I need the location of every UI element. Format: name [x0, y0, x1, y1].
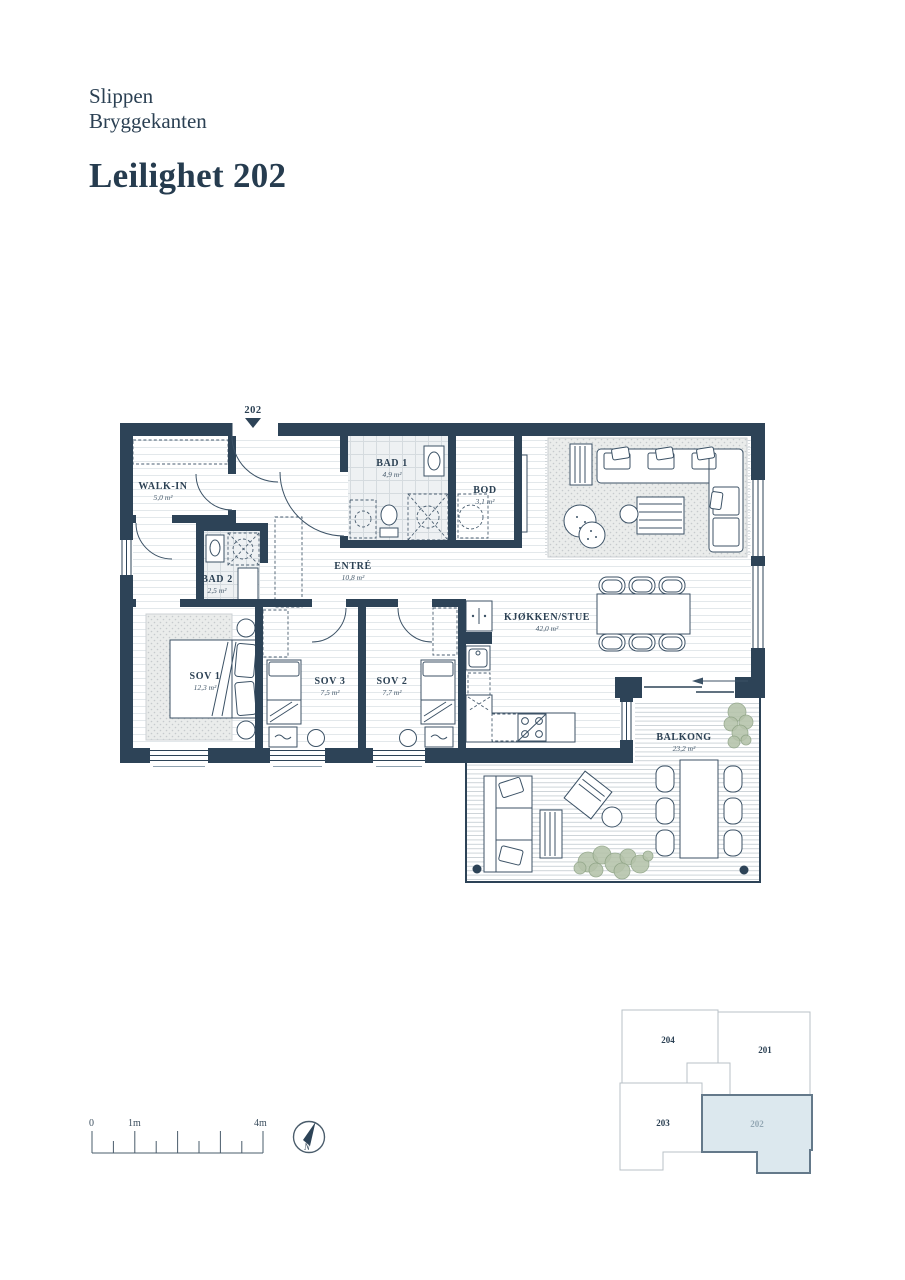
window [120, 540, 133, 575]
balcony-sliding-door [644, 678, 748, 693]
window [751, 480, 765, 556]
window [373, 748, 425, 767]
scale-label-0: 0 [89, 1118, 94, 1129]
room-area: 10,8 m² [342, 573, 365, 582]
room-area: 5,0 m² [154, 493, 174, 502]
keyplan-label-201: 201 [758, 1045, 772, 1055]
outdoor-round-table [602, 807, 622, 827]
balcony-column [740, 866, 749, 875]
sov2-stool [400, 730, 417, 747]
keyplan-label-202: 202 [750, 1119, 764, 1129]
room-area: 3,1 m² [475, 497, 496, 506]
outdoor-dining-table [680, 760, 718, 858]
room-label: BAD 2 [201, 574, 233, 585]
scale-label-4m: 4m [254, 1118, 267, 1129]
room-label: SOV 1 [190, 671, 221, 682]
dining-table [597, 594, 690, 634]
dining-set [597, 577, 690, 651]
floorplan-drawing: 202 WALK-IN 5,0 m² BAD 1 4,9 m² BOD 3,1 … [0, 0, 905, 1280]
room-area: 42,0 m² [536, 624, 559, 633]
outdoor-sofa [484, 776, 532, 872]
balcony-column [473, 865, 482, 874]
page: Slippen Bryggekanten Leilighet 202 [0, 0, 905, 1280]
keyplan-unit-202-highlighted [702, 1095, 812, 1173]
sov3-stool [308, 730, 325, 747]
scale-label-1m: 1m [128, 1118, 141, 1129]
washbasin [424, 446, 444, 476]
window [751, 566, 765, 648]
room-label: SOV 3 [315, 676, 346, 687]
toilet [381, 505, 397, 525]
room-label: BALKONG [656, 732, 711, 743]
room-area: 2,5 m² [208, 586, 228, 595]
room-area: 23,2 m² [673, 744, 696, 753]
room-label: ENTRÉ [334, 560, 371, 572]
outdoor-side-table [540, 810, 562, 858]
room-area: 4,9 m² [383, 470, 403, 479]
entrance-unit-number: 202 [244, 405, 261, 416]
room-label: WALK-IN [138, 481, 187, 492]
sov1-nightstand [237, 619, 255, 637]
room-area: 7,5 m² [321, 688, 341, 697]
washbasin [206, 535, 224, 562]
coffee-table [637, 497, 684, 534]
bad2-door-leaf [238, 568, 258, 600]
keyplan-label-203: 203 [656, 1118, 670, 1128]
window [150, 748, 208, 767]
scale-bar: 0 1m 4m [89, 1118, 267, 1153]
room-label: KJØKKEN/STUE [504, 612, 590, 623]
side-table [620, 505, 638, 523]
keyplan-label-204: 204 [661, 1035, 675, 1045]
tv-bench [570, 444, 592, 485]
outdoor-dining-set [656, 760, 742, 858]
sov1-nightstand [237, 721, 255, 739]
room-label: BOD [473, 485, 496, 496]
room-label: BAD 1 [376, 458, 408, 469]
room-label: SOV 2 [377, 676, 408, 687]
entrance-marker: 202 [244, 405, 261, 428]
entrance-arrow-icon [245, 418, 261, 428]
room-area: 7,7 m² [383, 688, 403, 697]
room-area: 12,3 m² [194, 683, 217, 692]
door-slide-arrow-icon [692, 678, 703, 685]
window [270, 748, 325, 767]
window [620, 702, 633, 740]
north-label: N [303, 1142, 311, 1152]
north-arrow: N [294, 1122, 325, 1153]
key-plan: 204 201 203 202 [620, 1010, 812, 1173]
